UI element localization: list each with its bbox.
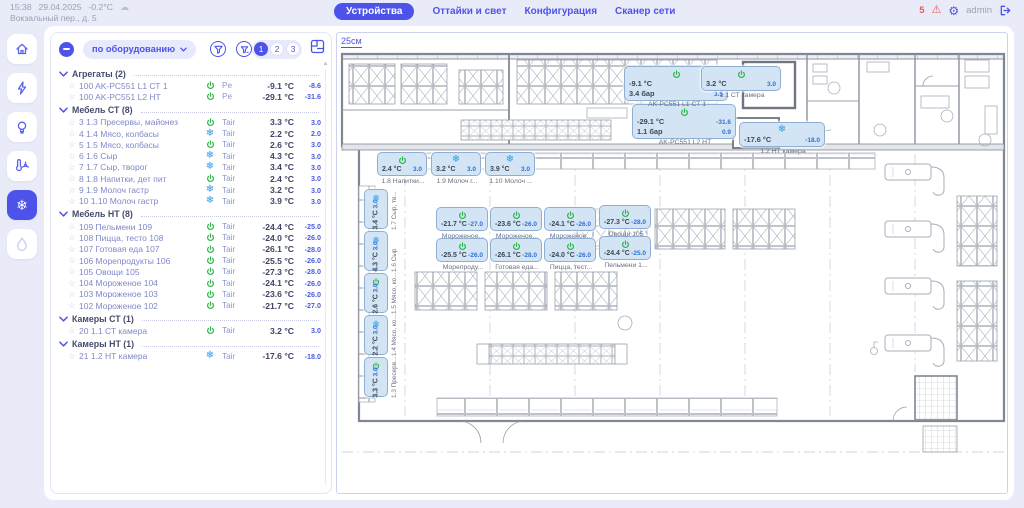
sidebar-item-water[interactable] (7, 229, 37, 259)
sensor-card[interactable]: ❄3.9 °C3.0 (485, 152, 535, 176)
param-label: Tair (222, 352, 250, 361)
setpoint-value: -27.0 (294, 301, 321, 310)
temp-value: -29.1 °C (250, 92, 294, 102)
star-icon[interactable]: ☆ (68, 255, 79, 266)
defrost-icon: ❄ (206, 151, 214, 161)
pagination: 1 2 3 (252, 40, 302, 59)
device-list: Агрегаты (2)☆100 AK-PC551 L1 СТ 1Pe-9.1 … (51, 64, 331, 362)
device-row[interactable]: ☆8 1.8 Напитки, дет питTair2.4 °C3.0 (59, 173, 321, 184)
device-name: 8 1.8 Напитки, дет пит (79, 174, 198, 184)
defrost-icon: ❄ (506, 155, 514, 165)
device-row[interactable]: ☆100 AK-PC551 L2 НТPe-29.1 °C-31.6 (59, 91, 321, 102)
thermometer-fan-icon (14, 158, 30, 174)
sensor-card-label: 1.9 Молоч г... (428, 178, 486, 185)
param-label: Tair (222, 118, 250, 127)
setpoint-value: 3.0 (294, 174, 321, 183)
sidebar-item-refrigeration[interactable]: ❄ (7, 190, 37, 220)
setpoint-value: -26.0 (294, 290, 321, 299)
sensor-card-label: 1.3 Пресерв... (391, 357, 398, 398)
minus-icon (63, 48, 70, 50)
temp-value: -21.7 °C (250, 301, 294, 311)
param-label: Tair (222, 245, 250, 254)
device-name: 10 1.10 Молоч гастр (79, 196, 198, 206)
tab-defrost-light[interactable]: Оттайки и свет (432, 6, 506, 17)
tab-devices[interactable]: Устройства (334, 3, 414, 20)
setpoint-value: 3.0 (294, 118, 321, 127)
param-label: Tair (222, 140, 250, 149)
outdoor-temp: -0.2°C (89, 2, 113, 12)
tab-configuration[interactable]: Конфигурация (525, 6, 598, 17)
setpoint-value: 3.0 (294, 152, 321, 161)
device-name: 108 Пицца, тесто 108 (79, 233, 198, 243)
bulb-icon (14, 119, 30, 135)
star-icon[interactable]: ☆ (68, 162, 79, 173)
star-icon[interactable]: ☆ (68, 289, 79, 300)
temp-value: -17.6 °C (250, 351, 294, 361)
star-icon[interactable]: ☆ (68, 325, 79, 336)
power-icon (458, 242, 467, 251)
setpoint-value: -18.0 (294, 352, 321, 361)
sensor-card-label: 1.8 Напитки... (374, 178, 432, 185)
content-container: по оборудованию 1 2 3 Агрегаты (2)☆100 A… (44, 26, 1014, 500)
power-icon (512, 242, 521, 251)
device-row[interactable]: ☆100 AK-PC551 L1 СТ 1Pe-9.1 °C-8.6 (59, 80, 321, 91)
star-icon[interactable]: ☆ (68, 185, 79, 196)
date: 29.04.2025 (39, 2, 82, 12)
filter-clear-button[interactable] (236, 41, 252, 57)
defrost-icon: ❄ (452, 155, 460, 165)
sensor-card-label: Мороженое... (487, 233, 547, 240)
chevron-down-icon (180, 47, 187, 52)
sensor-card-label: Овощи 105 (596, 231, 656, 238)
power-icon (206, 174, 215, 183)
device-row[interactable]: ☆21 1.2 НТ камера❄Tair-17.6 °C-18.0 (59, 351, 321, 362)
device-name: 20 1.1 СТ камера (79, 326, 198, 336)
device-row[interactable]: ☆105 Овощи 105Tair-27.3 °C-28.0 (59, 266, 321, 277)
device-row[interactable]: ☆103 Мороженое 103Tair-23.6 °C-26.0 (59, 289, 321, 300)
device-name: 9 1.9 Молоч гастр (79, 185, 198, 195)
setpoint-value: -26.0 (294, 279, 321, 288)
device-name: 6 1.6 Сыр (79, 151, 198, 161)
device-row[interactable]: ☆107 Готовая еда 107Tair-26.1 °C-28.0 (59, 244, 321, 255)
group-by-label: по оборудованию (92, 44, 175, 54)
device-row[interactable]: ☆20 1.1 СТ камераTair3.2 °C3.0 (59, 325, 321, 336)
param-label: Tair (222, 163, 250, 172)
setpoint-value: 3.0 (294, 197, 321, 206)
device-name: 5 1.5 Мясо, колбасы (79, 140, 198, 150)
sensor-card-label: 1.5 Мясо, ко... (391, 272, 398, 314)
temp-value: 3.2 °C (250, 185, 294, 195)
power-icon (621, 240, 630, 249)
power-icon (206, 290, 215, 299)
sensor-card[interactable]: ❄2.2 °C 3.0 (364, 315, 388, 355)
clock: 15:38 (10, 2, 32, 12)
list-toolbar: по оборудованию 1 2 3 (51, 33, 331, 64)
sensor-card-label: 1.4 Мясо, ко... (391, 314, 398, 356)
status-info: 15:3829.04.2025-0.2°C☁ Вокзальный пер., … (10, 2, 136, 23)
sensor-card-label: 1.1 СТ камера (698, 92, 786, 99)
gear-icon[interactable]: ⚙ (948, 5, 959, 17)
section-title: Агрегаты (2) (72, 69, 126, 79)
sensor-card-label: 1.7 Сыр, тв... (391, 191, 398, 230)
star-icon[interactable]: ☆ (68, 117, 79, 128)
page-button-1[interactable]: 1 (254, 42, 268, 56)
power-icon (206, 301, 215, 310)
power-icon (566, 211, 575, 220)
device-row[interactable]: ☆109 Пельмени 109Tair-24.4 °C-25.0 (59, 221, 321, 232)
star-icon[interactable]: ☆ (68, 80, 79, 91)
power-icon (206, 118, 215, 127)
star-icon[interactable]: ☆ (68, 232, 79, 243)
topbar: 15:3829.04.2025-0.2°C☁ Вокзальный пер., … (0, 0, 1024, 26)
power-icon (398, 156, 407, 165)
setpoint-value: -26.0 (294, 233, 321, 242)
temp-value: 2.6 °C (250, 140, 294, 150)
setpoint-value: 3.0 (294, 140, 321, 149)
power-icon (458, 211, 467, 220)
star-icon[interactable]: ☆ (68, 196, 79, 207)
param-label: Tair (222, 152, 250, 161)
sensor-card[interactable]: -24.1 °C-26.0 (544, 207, 596, 231)
power-icon (672, 70, 681, 79)
device-row[interactable]: ☆9 1.9 Молоч гастр❄Tair3.2 °C3.0 (59, 184, 321, 195)
app-sidebar: ❄ (7, 34, 37, 259)
chevron-down-icon (59, 211, 68, 217)
param-label: Pe (222, 81, 250, 90)
temp-value: -23.6 °C (250, 289, 294, 299)
power-icon (206, 81, 215, 90)
star-icon[interactable]: ☆ (68, 351, 79, 362)
home-icon (14, 41, 30, 57)
scroll-up-icon[interactable]: ▲ (322, 61, 329, 67)
page-button-2[interactable]: 2 (270, 42, 284, 56)
device-name: 107 Готовая еда 107 (79, 244, 198, 254)
param-label: Tair (222, 222, 250, 231)
device-name: 103 Мороженое 103 (79, 289, 198, 299)
setpoint-value: -31.6 (294, 92, 321, 101)
page-button-3[interactable]: 3 (286, 42, 300, 56)
sensor-card-label: AK-PC551 L2 НТ (629, 139, 741, 146)
sensor-card[interactable]: -24.4 °C-25.0 (599, 236, 651, 260)
setpoint-value: -25.0 (294, 222, 321, 231)
device-row[interactable]: ☆6 1.6 Сыр❄Tair4.3 °C3.0 (59, 150, 321, 161)
sensor-card-label: 1.2 НТ камера (736, 148, 830, 155)
defrost-icon: ❄ (206, 162, 214, 172)
star-icon[interactable]: ☆ (68, 266, 79, 277)
sensor-card[interactable]: ❄3.4 °C 3.0 (364, 189, 388, 229)
sensor-card-label: Морепроду... (433, 264, 493, 271)
username[interactable]: admin (966, 5, 992, 16)
setpoint-value: -8.6 (294, 81, 321, 90)
sensor-card-label: Пицца, тест... (541, 264, 601, 271)
sensor-card-label: 1.10 Молоч ... (482, 178, 540, 185)
param-label: Tair (222, 267, 250, 276)
cloud-icon: ☁ (120, 2, 129, 12)
group-by-dropdown[interactable]: по оборудованию (83, 40, 196, 59)
device-name: 21 1.2 НТ камера (79, 351, 198, 361)
device-name: 109 Пельмени 109 (79, 222, 198, 232)
sensor-card[interactable]: 3.2 °C3.0 (701, 66, 781, 91)
param-label: Tair (222, 233, 250, 242)
device-row[interactable]: ☆4 1.4 Мясо, колбасы❄Tair2.2 °C2.0 (59, 128, 321, 139)
chevron-down-icon (59, 341, 68, 347)
funnel-icon (214, 45, 223, 54)
param-label: Tair (222, 256, 250, 265)
address: Вокзальный пер., д. 5 (10, 13, 136, 24)
power-icon (206, 140, 215, 149)
param-label: Tair (222, 129, 250, 138)
collapse-panel-button[interactable] (59, 42, 74, 57)
sensor-card[interactable]: 3.3 °C 3.0 (364, 357, 388, 397)
power-icon (206, 256, 215, 265)
temp-value: -24.1 °C (250, 278, 294, 288)
setpoint-value: -28.0 (294, 267, 321, 276)
device-row[interactable]: ☆104 Мороженое 104Tair-24.1 °C-26.0 (59, 277, 321, 288)
setpoint-value: 2.0 (294, 129, 321, 138)
chevron-down-icon (59, 107, 68, 113)
power-icon (621, 209, 630, 218)
sensor-card-label: Готовая еда... (487, 264, 547, 271)
device-row[interactable]: ☆5 1.5 Мясо, колбасыTair2.6 °C3.0 (59, 139, 321, 150)
device-row[interactable]: ☆106 Морепродукты 106Tair-25.5 °C-26.0 (59, 255, 321, 266)
chevron-down-icon (59, 71, 68, 77)
sensor-card-label: Мороженое... (433, 233, 493, 240)
power-icon (206, 245, 215, 254)
sensor-card[interactable]: -21.7 °C-27.0 (436, 207, 488, 231)
sensor-card[interactable]: -26.1 °C-28.0 (490, 238, 542, 262)
sensor-card-label: Мороженое... (541, 233, 601, 240)
device-name: 106 Морепродукты 106 (79, 256, 198, 266)
defrost-icon: ❄ (778, 125, 786, 135)
setpoint-value: 3.0 (294, 186, 321, 195)
sensor-card[interactable]: 2.6 °C 3.0 (364, 273, 388, 313)
droplet-icon (14, 236, 30, 252)
sensor-card[interactable]: -24.0 °C-26.0 (544, 238, 596, 262)
power-icon (512, 211, 521, 220)
defrost-icon: ❄ (206, 196, 214, 206)
temp-value: 2.4 °C (250, 174, 294, 184)
star-icon[interactable]: ☆ (68, 139, 79, 150)
param-label: Tair (222, 326, 250, 335)
power-icon (737, 70, 746, 79)
power-icon (206, 222, 215, 231)
temp-value: 3.3 °C (250, 117, 294, 127)
scale-label: 25см (341, 36, 362, 48)
power-icon (680, 108, 689, 117)
setpoint-value: -28.0 (294, 245, 321, 254)
temp-value: 3.9 °C (250, 196, 294, 206)
star-icon[interactable]: ☆ (68, 91, 79, 102)
power-icon (206, 92, 215, 101)
sensor-card-label: 1.6 Сыр (391, 249, 398, 272)
star-icon[interactable]: ☆ (68, 278, 79, 289)
temp-value: -27.3 °C (250, 267, 294, 277)
snowflake-icon: ❄ (16, 197, 28, 214)
defrost-icon: ❄ (206, 129, 214, 139)
main-nav: Устройства Оттайки и свет Конфигурация С… (334, 3, 675, 20)
device-row[interactable]: ☆108 Пицца, тесто 108Tair-24.0 °C-26.0 (59, 232, 321, 243)
star-icon[interactable]: ☆ (68, 128, 79, 139)
floor-plan-icon (310, 39, 325, 54)
sensor-card[interactable]: ❄-17.6 °C-18.0 (739, 122, 825, 147)
device-row[interactable]: ☆102 Мороженое 102Tair-21.7 °C-27.0 (59, 300, 321, 311)
device-name: 100 AK-PC551 L1 СТ 1 (79, 81, 198, 91)
temp-value: -9.1 °C (250, 81, 294, 91)
power-icon (206, 267, 215, 276)
temp-value: -24.0 °C (250, 233, 294, 243)
tab-network-scanner[interactable]: Сканер сети (615, 6, 675, 17)
section-title: Мебель НТ (8) (72, 209, 133, 219)
power-icon (566, 242, 575, 251)
star-icon[interactable]: ☆ (68, 173, 79, 184)
device-name: 102 Мороженое 102 (79, 301, 198, 311)
section-header[interactable]: Камеры СТ (1) (59, 312, 321, 325)
param-label: Tair (222, 301, 250, 310)
power-icon (206, 233, 215, 242)
defrost-icon: ❄ (206, 185, 214, 195)
param-label: Tair (222, 174, 250, 183)
section-header[interactable]: Мебель СТ (8) (59, 104, 321, 117)
power-icon (206, 279, 215, 288)
sensor-card[interactable]: -27.3 °C-28.0 (599, 205, 651, 229)
setpoint-value: -26.0 (294, 256, 321, 265)
setpoint-value: 3.0 (294, 163, 321, 172)
sidebar-item-lighting[interactable] (7, 112, 37, 142)
sensor-card[interactable]: ❄3.2 °C3.0 (431, 152, 481, 176)
device-name: 4 1.4 Мясо, колбасы (79, 129, 198, 139)
device-name: 3 1.3 Пресервы, майонез (79, 117, 198, 127)
temp-value: -25.5 °C (250, 256, 294, 266)
temp-value: 2.2 °C (250, 129, 294, 139)
device-row[interactable]: ☆3 1.3 Пресервы, майонезTair3.3 °C3.0 (59, 117, 321, 128)
alerts-count[interactable]: 5 (919, 5, 924, 16)
temp-value: -26.1 °C (250, 244, 294, 254)
star-icon[interactable]: ☆ (68, 151, 79, 162)
star-icon[interactable]: ☆ (68, 244, 79, 255)
funnel-small-icon (240, 45, 249, 54)
device-row[interactable]: ☆10 1.10 Молоч гастр❄Tair3.9 °C3.0 (59, 196, 321, 207)
sensor-card-label: AK-PC551 L1 СТ 1 (621, 101, 733, 108)
list-scrollbar[interactable]: ▲ (322, 61, 329, 485)
warning-icon[interactable]: ⚠ (931, 5, 941, 16)
sidebar-item-climate[interactable] (7, 151, 37, 181)
sensor-card-label: Пельмени 1... (596, 262, 656, 269)
sensor-card[interactable]: 2.4 °C3.0 (377, 152, 427, 176)
section-title: Камеры СТ (1) (72, 314, 134, 324)
sensor-card[interactable]: ❄4.3 °C 3.0 (364, 231, 388, 271)
plan-view-toggle-button[interactable] (310, 39, 325, 59)
floor-plan[interactable]: -9.1 °C-8.63.4 бар3.5AK-PC551 L1 СТ 13.2… (337, 46, 1008, 470)
param-label: Tair (222, 279, 250, 288)
device-name: 105 Овощи 105 (79, 267, 198, 277)
filter-button[interactable] (210, 41, 226, 57)
device-name: 104 Мороженое 104 (79, 278, 198, 288)
sidebar-item-home[interactable] (7, 34, 37, 64)
temp-value: 3.2 °C (250, 326, 294, 336)
param-label: Pe (222, 92, 250, 101)
param-label: Tair (222, 197, 250, 206)
section-header[interactable]: Агрегаты (2) (59, 67, 321, 80)
chevron-down-icon (59, 316, 68, 322)
sensor-card[interactable]: -23.6 °C-26.0 (490, 207, 542, 231)
section-title: Мебель СТ (8) (72, 105, 133, 115)
sensor-card-layer: -9.1 °C-8.63.4 бар3.5AK-PC551 L1 СТ 13.2… (337, 46, 1008, 470)
setpoint-value: 3.0 (294, 326, 321, 335)
temp-value: -24.4 °C (250, 222, 294, 232)
star-icon[interactable]: ☆ (68, 221, 79, 232)
sidebar-item-energy[interactable] (7, 73, 37, 103)
section-title: Камеры НТ (1) (72, 339, 134, 349)
star-icon[interactable]: ☆ (68, 300, 79, 311)
section-header[interactable]: Мебель НТ (8) (59, 208, 321, 221)
sensor-card[interactable]: -29.1 °C-31.61.1 бар0.9 (632, 104, 736, 139)
lightning-icon (14, 80, 30, 96)
section-header[interactable]: Камеры НТ (1) (59, 338, 321, 351)
device-list-panel: по оборудованию 1 2 3 Агрегаты (2)☆100 A… (50, 32, 332, 494)
temp-value: 3.4 °C (250, 162, 294, 172)
temp-value: 4.3 °C (250, 151, 294, 161)
defrost-icon: ❄ (206, 351, 214, 361)
param-label: Tair (222, 290, 250, 299)
floor-plan-panel: 25см (336, 32, 1008, 494)
device-row[interactable]: ☆7 1.7 Сыр, творог❄Tair3.4 °C3.0 (59, 162, 321, 173)
logout-icon[interactable] (999, 4, 1012, 17)
power-icon (206, 326, 215, 335)
sensor-card[interactable]: -25.5 °C-26.0 (436, 238, 488, 262)
param-label: Tair (222, 186, 250, 195)
device-name: 100 AK-PC551 L2 НТ (79, 92, 198, 102)
device-name: 7 1.7 Сыр, творог (79, 162, 198, 172)
